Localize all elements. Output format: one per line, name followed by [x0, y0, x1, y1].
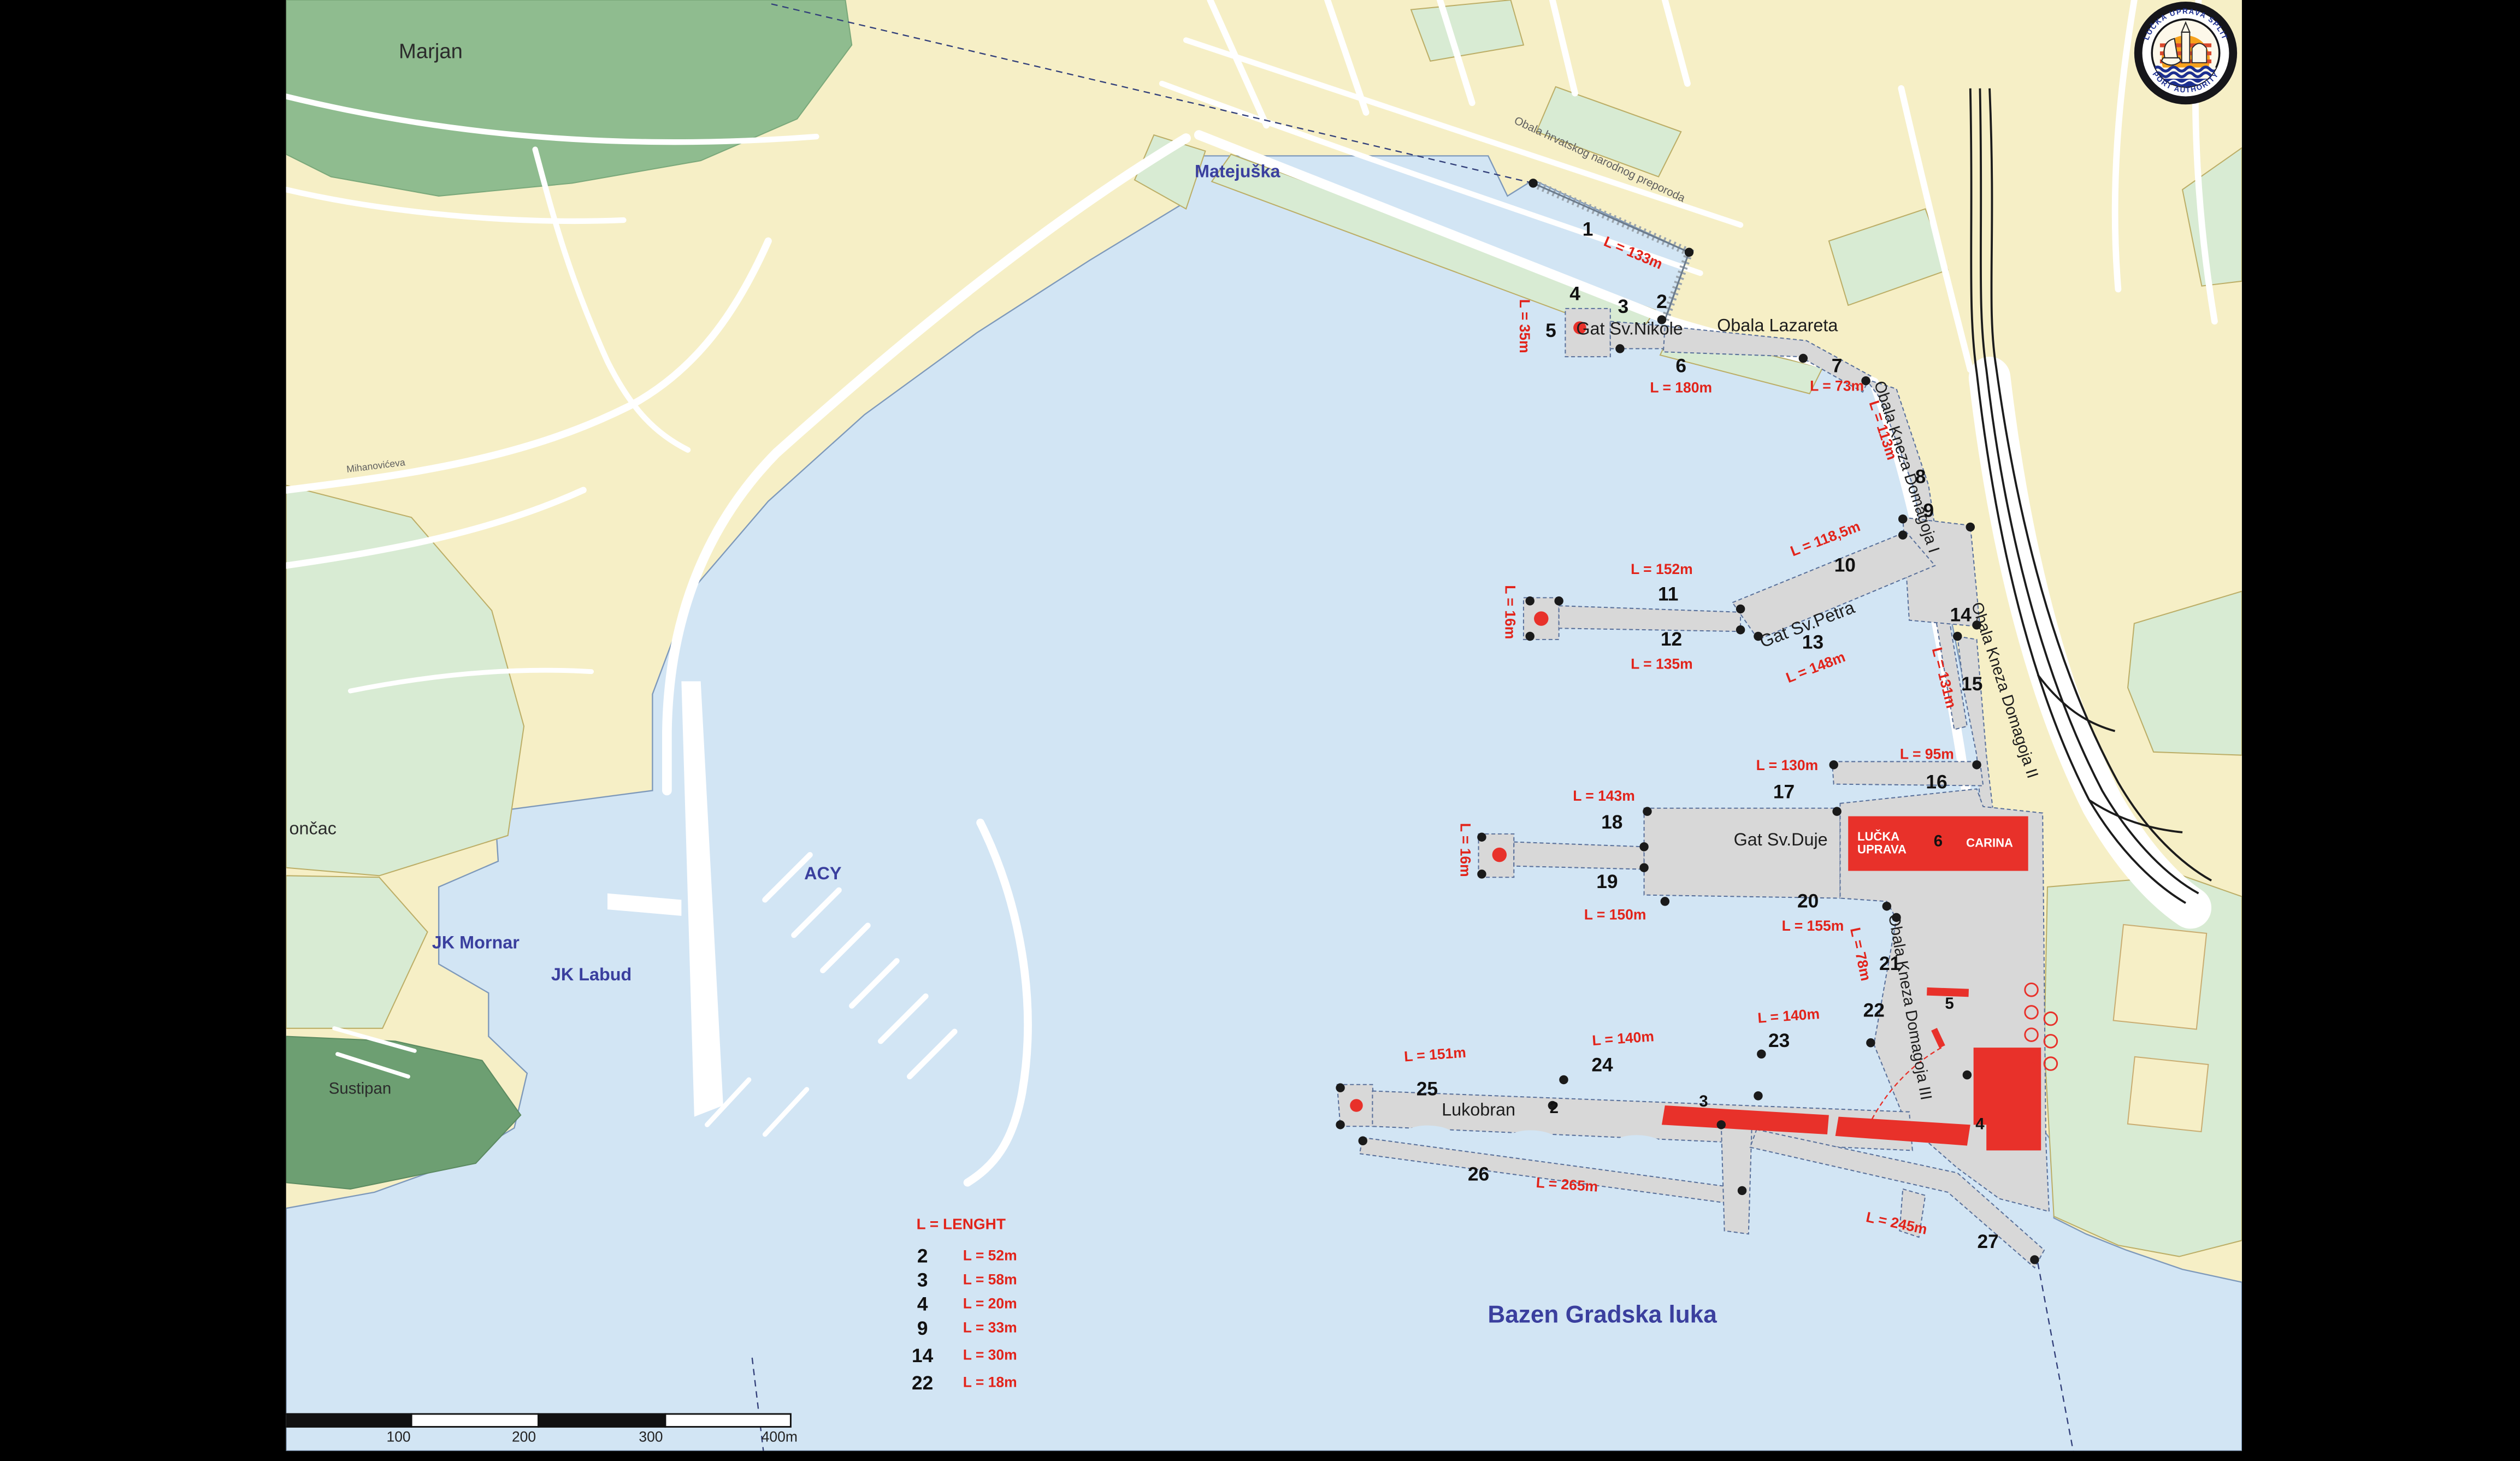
pier-mark-2: 2 — [1550, 1102, 1559, 1119]
berth-number-5: 5 — [1545, 321, 1556, 341]
pier-mark-3: 3 — [1699, 1096, 1708, 1113]
lucka-line2: UPRAVA — [1857, 842, 1907, 856]
legend-berth-3: 3 — [917, 1270, 928, 1291]
label-carina: CARINA — [1966, 837, 2013, 850]
stage: LUČKA UPRAVA SPLIT PORT AUTHORITY Marjan… — [0, 0, 2520, 1460]
legend-berth-14: 14 — [912, 1346, 933, 1366]
green-topright — [2182, 148, 2242, 286]
building-right-1 — [2114, 925, 2207, 1030]
scale-label-200: 200 — [512, 1430, 536, 1446]
legend-length-3: L = 58m — [963, 1273, 1017, 1288]
label-obala-lazareta: Obala Lazareta — [1717, 318, 1838, 337]
label-oncac: ončac — [290, 821, 337, 840]
logo-tower — [2182, 32, 2190, 63]
berth-number-24: 24 — [1591, 1055, 1613, 1075]
berth-length-5: L = 35m — [1516, 299, 1531, 353]
label-gat-sv-duje: Gat Sv.Duje — [1734, 833, 1828, 851]
pier-head-length-2: L = 16m — [1456, 823, 1472, 877]
berth-number-11: 11 — [1658, 584, 1678, 605]
berth-length-11: L = 152m — [1631, 563, 1693, 578]
harbor-map: LUČKA UPRAVA SPLIT PORT AUTHORITY Marjan… — [286, 0, 2242, 1451]
legend-berth-22: 22 — [912, 1373, 933, 1393]
label-gat-sv-nikole: Gat Sv.Nikole — [1576, 322, 1683, 340]
berth-length-19: L = 150m — [1584, 908, 1646, 924]
berth-number-21: 21 — [1879, 954, 1901, 974]
berth-number-8: 8 — [1915, 467, 1926, 487]
legend-berth-9: 9 — [917, 1318, 928, 1339]
berth-number-9: 9 — [1923, 501, 1934, 521]
legend-length-22: L = 18m — [963, 1376, 1017, 1391]
label-jk-mornar: JK Mornar — [432, 936, 520, 954]
scale-label-100: 100 — [386, 1430, 410, 1446]
berth-number-17: 17 — [1773, 782, 1795, 802]
berth-length-12: L = 135m — [1631, 658, 1693, 673]
pier-mark-4: 4 — [1975, 1118, 1984, 1135]
scale-label-300: 300 — [639, 1430, 663, 1446]
label-jk-labud: JK Labud — [551, 968, 632, 986]
berth-number-6: 6 — [1675, 356, 1686, 376]
label-acy: ACY — [804, 866, 841, 885]
berth-number-18: 18 — [1601, 813, 1622, 833]
berth-number-13: 13 — [1802, 632, 1823, 653]
berth-length-7: L = 73m — [1810, 380, 1864, 395]
pier-head-length-1: L = 16m — [1502, 585, 1517, 639]
berth-length-16: L = 95m — [1900, 748, 1954, 763]
berth-number-20: 20 — [1797, 891, 1819, 912]
logo-dome — [2192, 43, 2206, 62]
legend-length-9: L = 33m — [963, 1321, 1017, 1336]
finger-pier-south — [1721, 1125, 1752, 1234]
pier-mark-5: 5 — [1945, 997, 1954, 1014]
berth-number-19: 19 — [1596, 872, 1618, 892]
building-right-2 — [2128, 1057, 2209, 1132]
green-right-mid — [2128, 592, 2242, 755]
berth-number-27: 27 — [1977, 1232, 1998, 1252]
berth16-arm — [1832, 761, 1984, 785]
berth-number-3: 3 — [1618, 297, 1628, 317]
marjan-hill — [286, 0, 852, 196]
green-lazareta-ne — [1829, 209, 1948, 305]
port-authority-logo: LUČKA UPRAVA SPLIT PORT AUTHORITY — [2138, 5, 2233, 100]
berth-length-6: L = 180m — [1650, 381, 1712, 397]
label-carina-6: 6 — [1934, 835, 1943, 852]
scale-bar — [286, 1414, 791, 1427]
berth-number-10: 10 — [1834, 555, 1856, 576]
scale-label-400m: 400m — [762, 1430, 798, 1446]
legend-berth-2: 2 — [917, 1246, 928, 1267]
screenshot-frame: LUČKA UPRAVA SPLIT PORT AUTHORITY Marjan… — [0, 0, 2520, 1461]
berth-number-26: 26 — [1468, 1164, 1489, 1185]
berth-number-14: 14 — [1950, 605, 1971, 625]
berth-number-2: 2 — [1656, 292, 1667, 312]
berth-length-17: L = 130m — [1756, 759, 1819, 774]
berth-number-7: 7 — [1832, 356, 1843, 376]
legend-length-4: L = 20m — [963, 1297, 1017, 1312]
label-lucka-uprava: LUČKA UPRAVA — [1857, 831, 1907, 856]
legend-title: L = LENGHT — [917, 1218, 1006, 1234]
label-sustipan: Sustipan — [329, 1083, 392, 1099]
label-marjan: Marjan — [399, 40, 463, 62]
legend-berth-4: 4 — [917, 1294, 928, 1315]
berth-number-1: 1 — [1583, 220, 1594, 240]
berth-length-18: L = 143m — [1573, 789, 1635, 805]
berth-number-15: 15 — [1961, 675, 1982, 695]
legend-length-2: L = 52m — [963, 1249, 1017, 1264]
berth-number-23: 23 — [1768, 1031, 1790, 1051]
berth-number-25: 25 — [1417, 1079, 1438, 1099]
berth-number-4: 4 — [1569, 284, 1580, 304]
label-bazen-gradska-luka: Bazen Gradska luka — [1488, 1303, 1716, 1328]
berth-length-20: L = 155m — [1782, 920, 1844, 935]
legend-length-14: L = 30m — [963, 1348, 1017, 1364]
berth-number-12: 12 — [1661, 629, 1682, 649]
park-west-2 — [286, 876, 428, 1028]
label-lukobran: Lukobran — [1442, 1103, 1515, 1121]
label-matejuska: Matejuška — [1195, 164, 1280, 183]
berth-number-22: 22 — [1863, 1001, 1885, 1021]
gat-sv-duje-pier — [1644, 808, 1840, 898]
green-citypark — [1411, 0, 1524, 61]
map-canvas: LUČKA UPRAVA SPLIT PORT AUTHORITY — [286, 0, 2242, 1451]
berth-number-16: 16 — [1926, 772, 1947, 792]
